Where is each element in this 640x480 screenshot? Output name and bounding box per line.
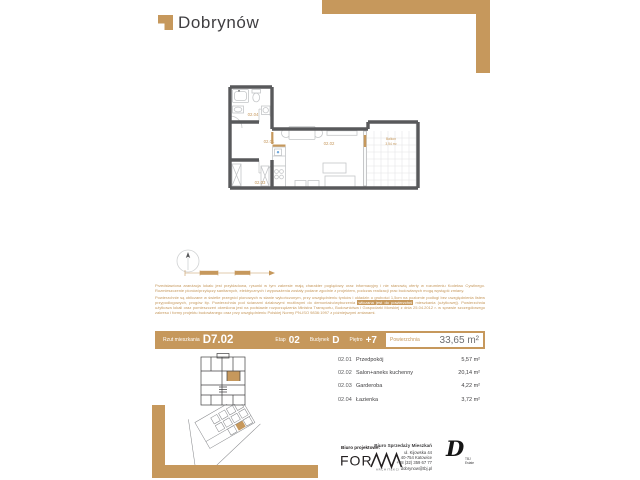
building-label: Budynek <box>310 337 329 343</box>
brand-logo-icon <box>158 15 173 30</box>
total-area-box: Powierzchnia 33,65 m² <box>386 333 483 347</box>
tbj-line2: Estate <box>465 461 474 465</box>
stage-label: Etap <box>275 337 285 343</box>
floor-value: +7 <box>366 335 377 346</box>
top-accent-bar-vertical <box>476 0 490 73</box>
balcony-label: Balkon <box>386 137 396 141</box>
apartment-floorplan: 02.04 02.01 02.02 02.03 Balkon 3,54 m² <box>215 80 425 200</box>
room-code: 02.02 <box>338 370 356 376</box>
room-area: 3,72 m² <box>461 397 480 403</box>
balcony-area: 3,54 m² <box>385 142 397 146</box>
apartment-info-bar: Rzut mieszkania D7.02 Etap 02 Budynek D … <box>155 331 485 349</box>
tbj-logo-text: TBJ Estate <box>465 457 474 465</box>
room-area: 20,14 m² <box>458 370 480 376</box>
disclaimer-paragraph-1: Przedstawiona aranżacja lokalu jest przy… <box>155 283 485 293</box>
site-miniplan <box>176 404 264 472</box>
plan-label: Rzut mieszkania <box>163 337 200 343</box>
table-row: 02.01 Przedpokój 5,57 m² <box>338 357 480 363</box>
table-row: 02.03 Garderoba 4,22 m² <box>338 383 480 389</box>
room-name: Łazienka <box>356 397 461 403</box>
building-value: D <box>332 335 339 346</box>
table-row: 02.02 Salon+aneks kuchenny 20,14 m² <box>338 370 480 376</box>
room-area: 5,57 m² <box>461 357 480 363</box>
area-value: 33,65 m² <box>440 335 479 346</box>
disclaimer-paragraph-2: Powierzchnie są obliczane w świetle prze… <box>155 295 485 315</box>
floor-label: Piętro <box>350 337 363 343</box>
room-code: 02.04 <box>338 397 356 403</box>
plan-number: D7.02 <box>203 334 234 346</box>
room-label-bath: 02.04 <box>248 112 259 117</box>
sales-email: dobrynow@tbj.pl <box>360 466 432 471</box>
room-code: 02.01 <box>338 357 356 363</box>
scale-bar <box>180 265 280 279</box>
room-name: Przedpokój <box>356 357 461 363</box>
room-name: Garderoba <box>356 383 461 389</box>
tbj-logo-letter: D <box>446 438 464 460</box>
bottom-accent-bar <box>152 465 318 478</box>
top-accent-bar <box>322 0 490 14</box>
stage-value: 02 <box>289 335 300 346</box>
floor-plate-miniplan <box>198 352 250 410</box>
area-label: Powierzchnia <box>390 337 420 343</box>
brand-name: Dobrynów <box>178 13 259 33</box>
room-label-hall: 02.01 <box>264 139 275 144</box>
room-area: 4,22 m² <box>461 383 480 389</box>
room-table: 02.01 Przedpokój 5,57 m² 02.02 Salon+ane… <box>338 357 480 410</box>
furniture <box>232 90 357 189</box>
floorplan-sheet: Dobrynów <box>0 0 640 480</box>
sales-office-block: Biuro Sprzedaży Mieszkań ul. Kijowska 44… <box>360 443 432 471</box>
sales-office-title: Biuro Sprzedaży Mieszkań <box>360 443 432 448</box>
room-name: Salon+aneks kuchenny <box>356 370 458 376</box>
balcony-hatch <box>367 124 417 187</box>
table-row: 02.04 Łazienka 3,72 m² <box>338 397 480 403</box>
room-label-living: 02.02 <box>324 141 335 146</box>
room-label-wardrobe: 02.03 <box>255 180 266 185</box>
room-code: 02.03 <box>338 383 356 389</box>
